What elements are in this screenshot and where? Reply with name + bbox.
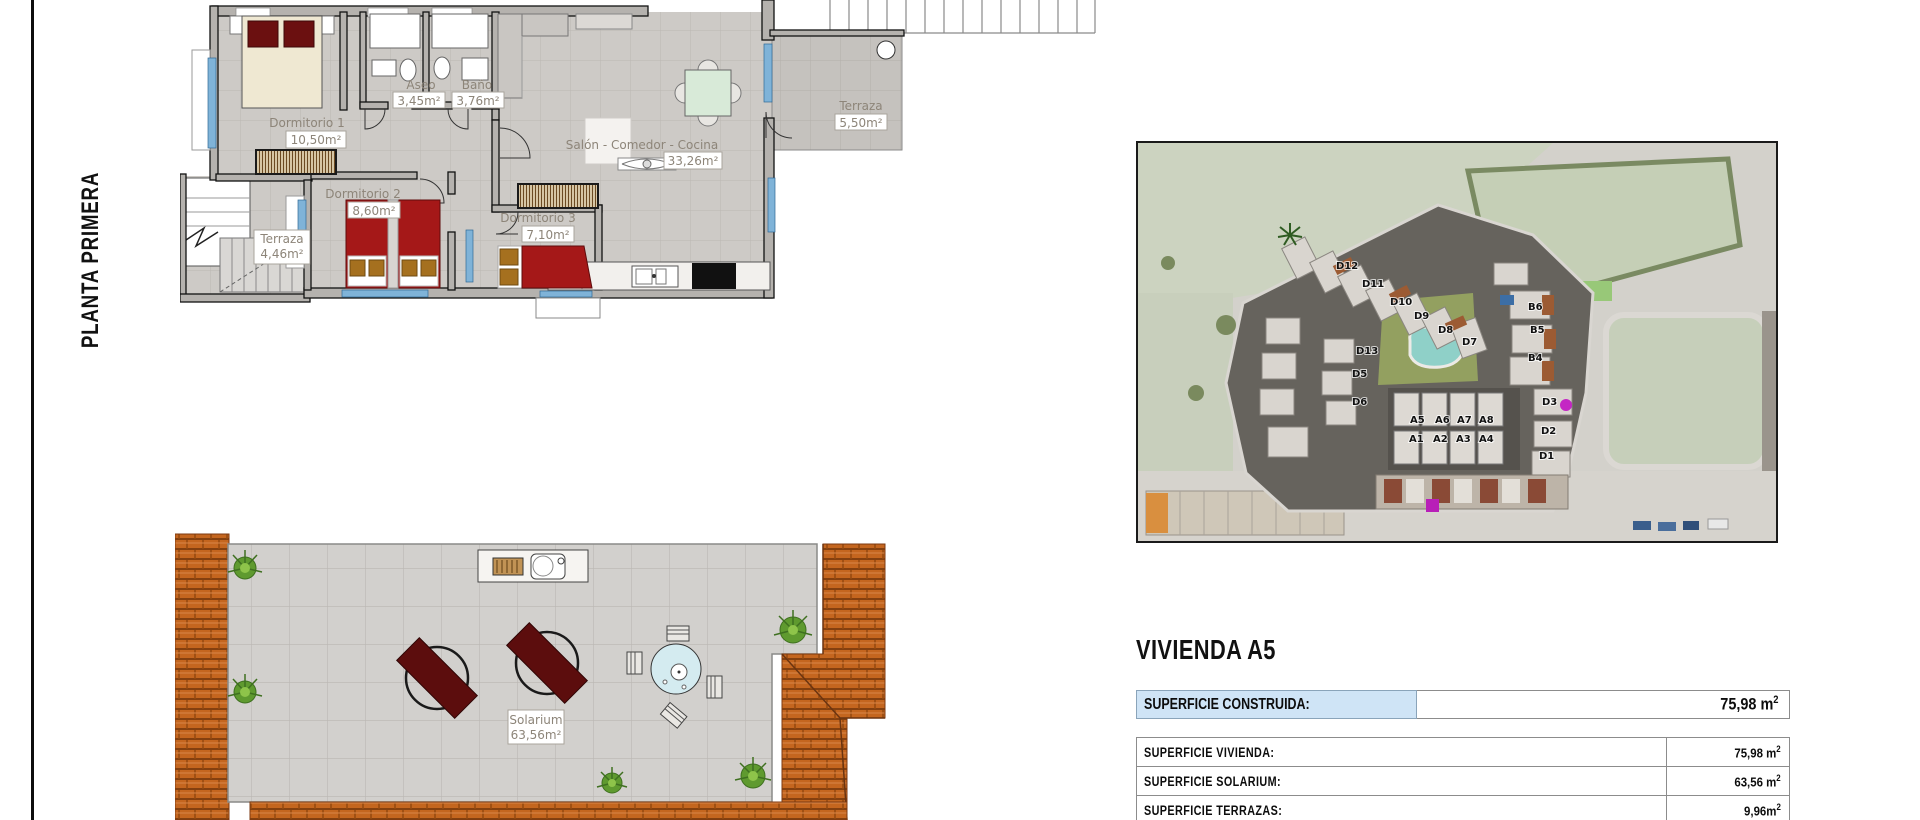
solarium-room-area: 63,56m² <box>511 728 562 742</box>
row-value: 63,56 m <box>1735 774 1777 789</box>
magenta-marker-1 <box>1560 399 1572 411</box>
field-right <box>1606 315 1766 467</box>
svg-text:D12: D12 <box>1336 261 1358 272</box>
room-label-bano: Baño <box>462 78 493 92</box>
svg-text:A8: A8 <box>1479 415 1494 426</box>
room-area-dormitorio2: 8,60m² <box>352 204 395 218</box>
svg-text:D6: D6 <box>1352 397 1367 408</box>
svg-text:D9: D9 <box>1414 311 1429 322</box>
superficie-construida-label: SUPERFICIE CONSTRUIDA: <box>1144 696 1310 714</box>
dining-table <box>675 60 741 126</box>
superficie-construida-row: SUPERFICIE CONSTRUIDA: 75,98 m2 <box>1136 690 1790 719</box>
room-area-dormitorio1: 10,50m² <box>291 133 342 147</box>
svg-text:A1: A1 <box>1409 434 1424 445</box>
svg-text:D7: D7 <box>1462 337 1477 348</box>
planta-primera-title: PLANTA PRIMERA <box>77 159 107 362</box>
svg-text:D10: D10 <box>1390 297 1412 308</box>
closet-dormitorio-3 <box>518 184 598 208</box>
a-block <box>1388 388 1520 470</box>
room-label-dormitorio2: Dormitorio 2 <box>325 187 400 201</box>
svg-text:D8: D8 <box>1438 325 1453 336</box>
right-b-roofs <box>1542 295 1556 381</box>
svg-text:D2: D2 <box>1541 426 1556 437</box>
room-area-terraza-tr: 5,50m² <box>839 116 882 130</box>
roof-strip-left <box>175 534 229 820</box>
bed-dormitorio-3 <box>498 246 592 288</box>
plan-sheet: PLANTA PRIMERA SOLARIUM <box>0 0 1920 820</box>
planta-primera-text: PLANTA PRIMERA <box>77 172 104 348</box>
superficie-construida-sup: 2 <box>1774 694 1779 706</box>
tv-unit <box>576 14 632 29</box>
aerial-map-frame: D12 D11 D10 D9 D8 D7 D13 D5 D6 B6 B5 B4 … <box>1136 141 1778 543</box>
svg-text:D1: D1 <box>1539 451 1554 462</box>
first-floor-plan: Dormitorio 1 10,50m² Aseo 3,45m² Baño 3,… <box>180 0 1100 330</box>
room-label-dormitorio1: Dormitorio 1 <box>269 116 344 130</box>
solarium-title: SOLARIUM <box>77 771 107 820</box>
room-label-terraza-left: Terraza <box>259 232 303 246</box>
svg-text:D13: D13 <box>1356 346 1378 357</box>
svg-text:D3: D3 <box>1542 397 1557 408</box>
svg-text:D5: D5 <box>1352 369 1367 380</box>
solarium-deck <box>228 544 817 802</box>
surface-table: SUPERFICIE VIVIENDA: 75,98 m2 SUPERFICIE… <box>1136 737 1790 820</box>
table-row-vivienda: SUPERFICIE VIVIENDA: 75,98 m2 <box>1137 738 1789 767</box>
bbq-counter <box>478 550 588 582</box>
row-label: SUPERFICIE VIVIENDA: <box>1144 745 1274 760</box>
svg-text:A4: A4 <box>1479 434 1494 445</box>
room-area-dormitorio3: 7,10m² <box>526 228 569 242</box>
room-label-terraza-tr: Terraza <box>838 99 882 113</box>
solarium-room-label: Solarium <box>509 713 562 727</box>
row-label: SUPERFICIE SOLARIUM: <box>1144 774 1281 789</box>
room-area-aseo: 3,45m² <box>397 94 440 108</box>
row-value: 75,98 m <box>1735 745 1777 760</box>
table-row-terrazas: SUPERFICIE TERRAZAS: 9,96m2 <box>1137 796 1789 820</box>
exterior-stairs-hatch <box>830 0 1095 33</box>
table-row-solarium: SUPERFICIE SOLARIUM: 63,56 m2 <box>1137 767 1789 796</box>
svg-text:A6: A6 <box>1435 415 1450 426</box>
svg-text:A2: A2 <box>1433 434 1448 445</box>
svg-text:A7: A7 <box>1457 415 1472 426</box>
room-label-aseo: Aseo <box>406 78 435 92</box>
svg-text:B4: B4 <box>1528 353 1543 364</box>
row-value: 9,96m <box>1744 803 1776 818</box>
superficie-construida-value: 75,98 m <box>1721 695 1774 714</box>
vivienda-title: VIVIENDA A5 <box>1136 634 1276 666</box>
parcel-bottom-row <box>1376 475 1568 509</box>
pool-accents <box>1500 295 1514 305</box>
row-label: SUPERFICIE TERRAZAS: <box>1144 803 1282 818</box>
svg-text:A3: A3 <box>1456 434 1471 445</box>
aerial-map: D12 D11 D10 D9 D8 D7 D13 D5 D6 B6 B5 B4 … <box>1138 143 1776 541</box>
bed-dormitorio-1 <box>230 16 334 108</box>
aseo-fixtures <box>370 14 420 81</box>
superficie-construida-label-cell: SUPERFICIE CONSTRUIDA: <box>1136 690 1417 719</box>
roof-strip-bottom <box>250 802 847 820</box>
svg-text:A5: A5 <box>1410 415 1425 426</box>
far-right-strip <box>1762 311 1776 471</box>
closet-dormitorio-1 <box>256 150 336 174</box>
terrace-light <box>877 41 895 59</box>
room-area-salon: 33,26m² <box>668 154 719 168</box>
room-label-dormitorio3: Dormitorio 3 <box>500 211 575 225</box>
svg-text:D11: D11 <box>1362 279 1384 290</box>
room-area-terraza-left: 4,46m² <box>260 247 303 261</box>
balcony <box>536 298 600 318</box>
room-area-bano: 3,76m² <box>456 94 499 108</box>
room-label-salon: Salón - Comedor - Cocina <box>566 138 718 152</box>
svg-text:B6: B6 <box>1528 302 1543 313</box>
svg-text:B5: B5 <box>1530 325 1545 336</box>
sheet-border-line <box>31 0 34 820</box>
magenta-marker-2 <box>1426 499 1439 512</box>
solarium-plan: Solarium 63,56m² <box>175 530 905 820</box>
superficie-construida-value-cell: 75,98 m2 <box>1417 690 1790 719</box>
